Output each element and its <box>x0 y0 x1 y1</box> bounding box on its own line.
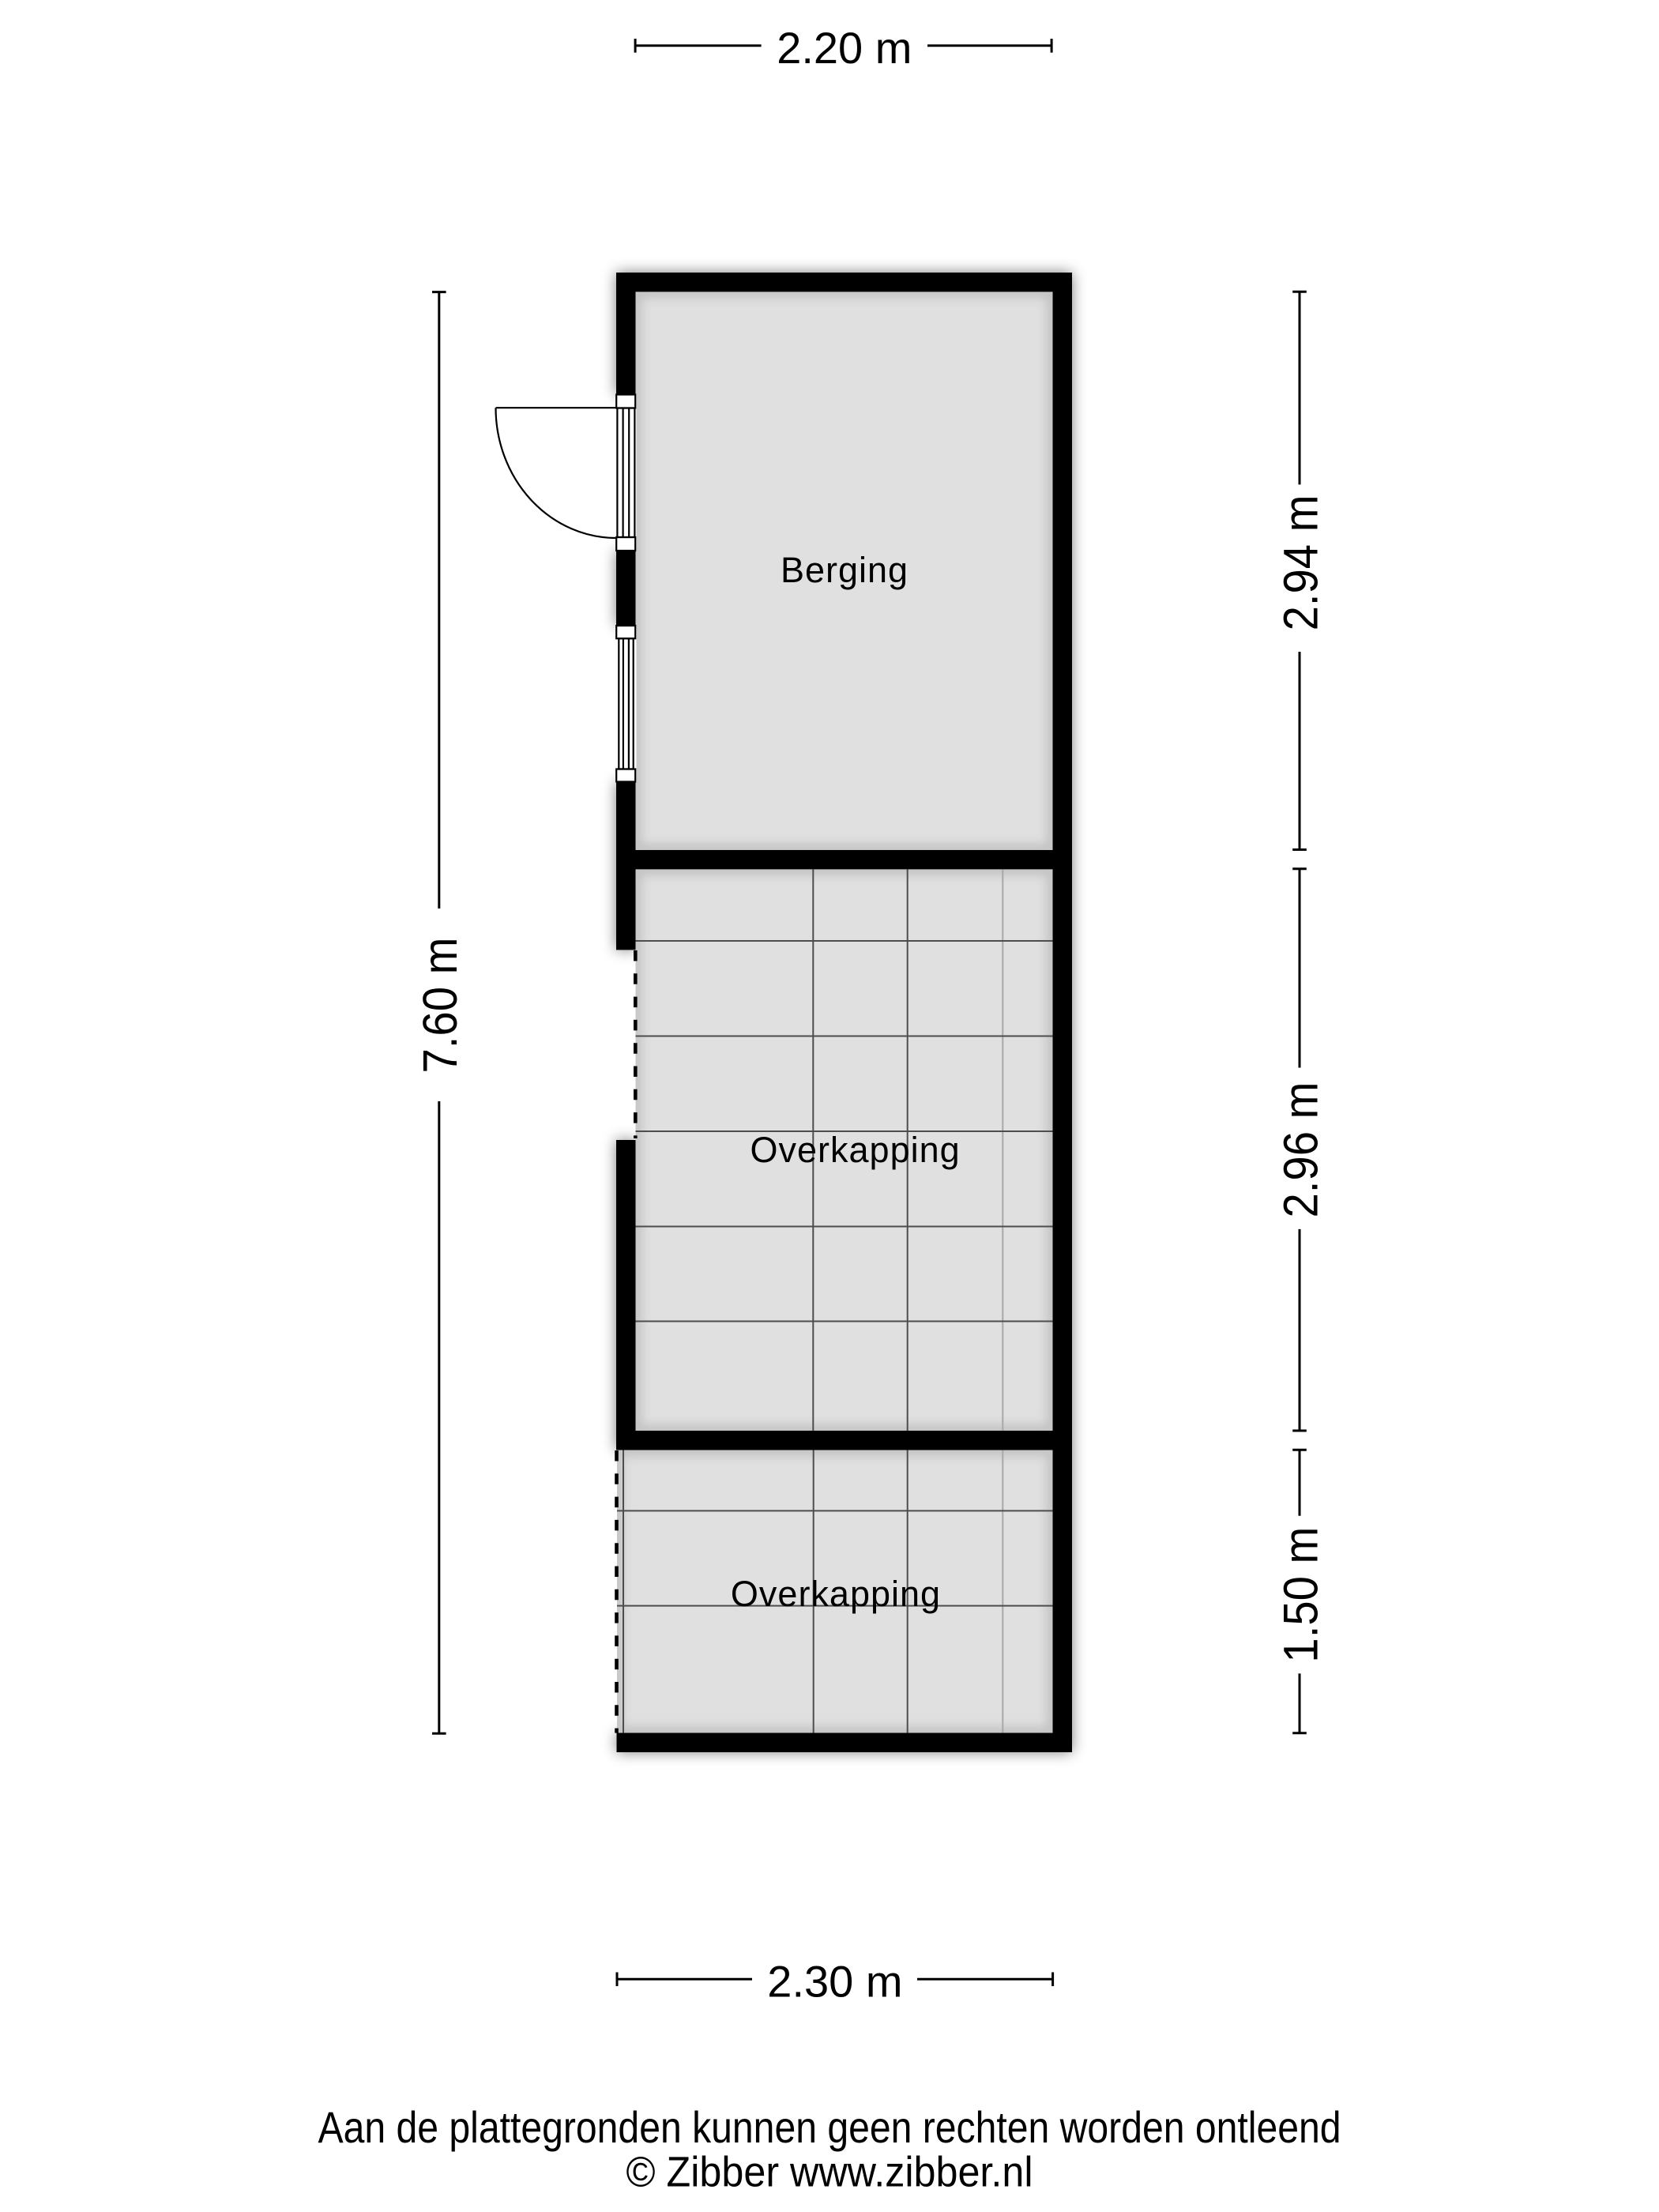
svg-text:2.30 m: 2.30 m <box>767 1956 902 2006</box>
svg-text:2.94 m: 2.94 m <box>1273 495 1327 630</box>
svg-text:2.96 m: 2.96 m <box>1273 1082 1327 1218</box>
svg-text:1.50 m: 1.50 m <box>1273 1527 1327 1663</box>
svg-text:© Zibber www.zibber.nl: © Zibber www.zibber.nl <box>626 2148 1033 2195</box>
svg-text:2.20 m: 2.20 m <box>777 23 912 73</box>
svg-text:7.60 m: 7.60 m <box>413 938 467 1074</box>
svg-text:Berging: Berging <box>781 550 908 590</box>
svg-text:Overkapping: Overkapping <box>750 1130 961 1170</box>
svg-text:Aan de plattegronden kunnen ge: Aan de plattegronden kunnen geen rechten… <box>318 2102 1341 2152</box>
svg-text:Overkapping: Overkapping <box>731 1574 941 1614</box>
